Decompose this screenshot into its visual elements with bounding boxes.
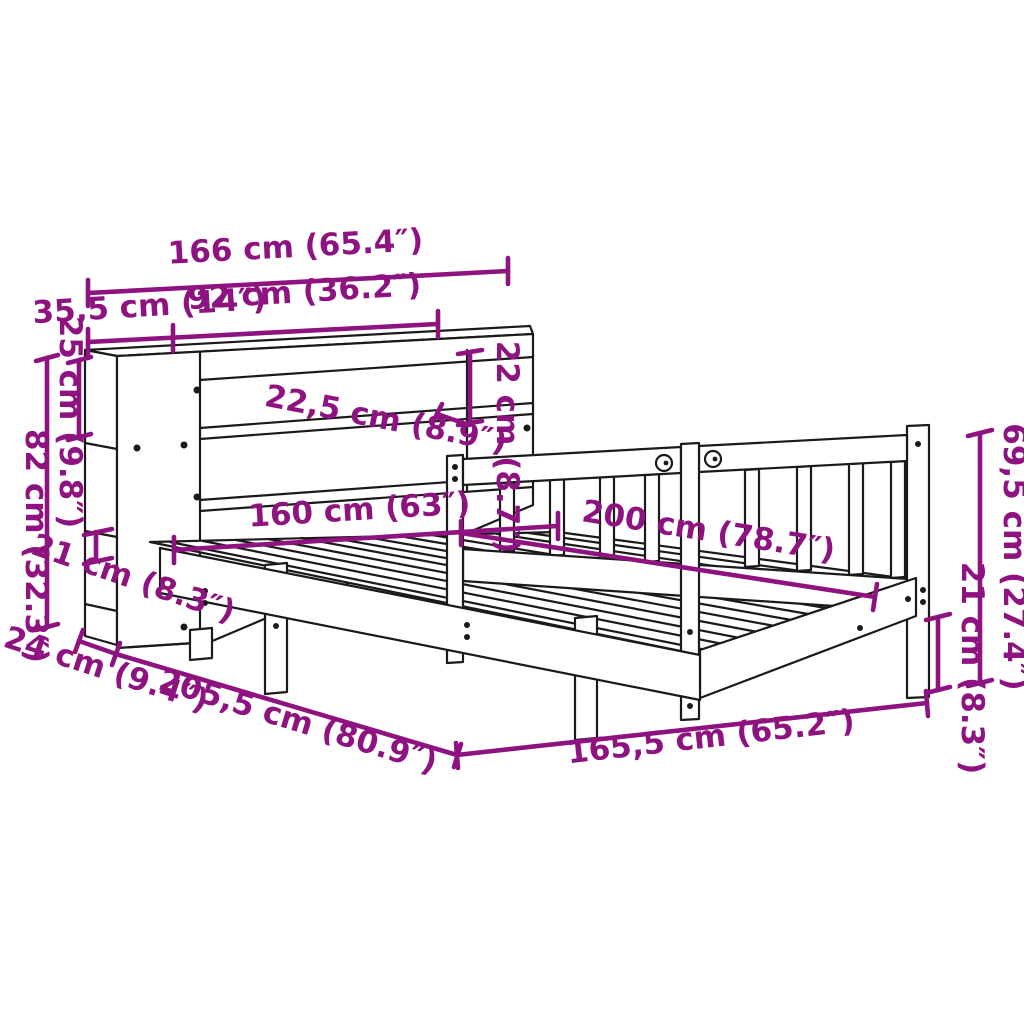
dimension-diagram: 166 cm (65.4″) 35,5 cm (14″) 92 cm (36.2… — [0, 0, 1024, 1024]
bed-diagram-canvas: 166 cm (65.4″) 35,5 cm (14″) 92 cm (36.2… — [0, 0, 1024, 1024]
dim-side-compartment-height: 25 cm (9.8″) — [52, 316, 91, 529]
dim-clearance-right: 21 cm (8.3″) — [926, 562, 990, 775]
top-rail-right — [699, 435, 907, 472]
dim-clearance-right-label: 21 cm (8.3″) — [954, 562, 990, 775]
dim-side-compartment-height-label: 25 cm (9.8″) — [52, 316, 88, 529]
dim-total-length-label: 205,5 cm (80.9″) — [154, 662, 441, 781]
dim-total-length: 205,5 cm (80.9″) — [116, 654, 461, 781]
dim-headboard-total-width-label: 166 cm (65.4″) — [167, 222, 424, 271]
dim-rail-height-label: 69,5 cm (27.4″) — [996, 423, 1024, 690]
dim-frame-outer-width-label: 165,5 cm (65.2″) — [565, 703, 856, 771]
dim-shelf-opening-width-label: 92 cm (36.2″) — [186, 267, 422, 317]
dim-headboard-height: 82 cm (32.3″) — [18, 355, 58, 663]
rail-post-right — [907, 425, 929, 698]
